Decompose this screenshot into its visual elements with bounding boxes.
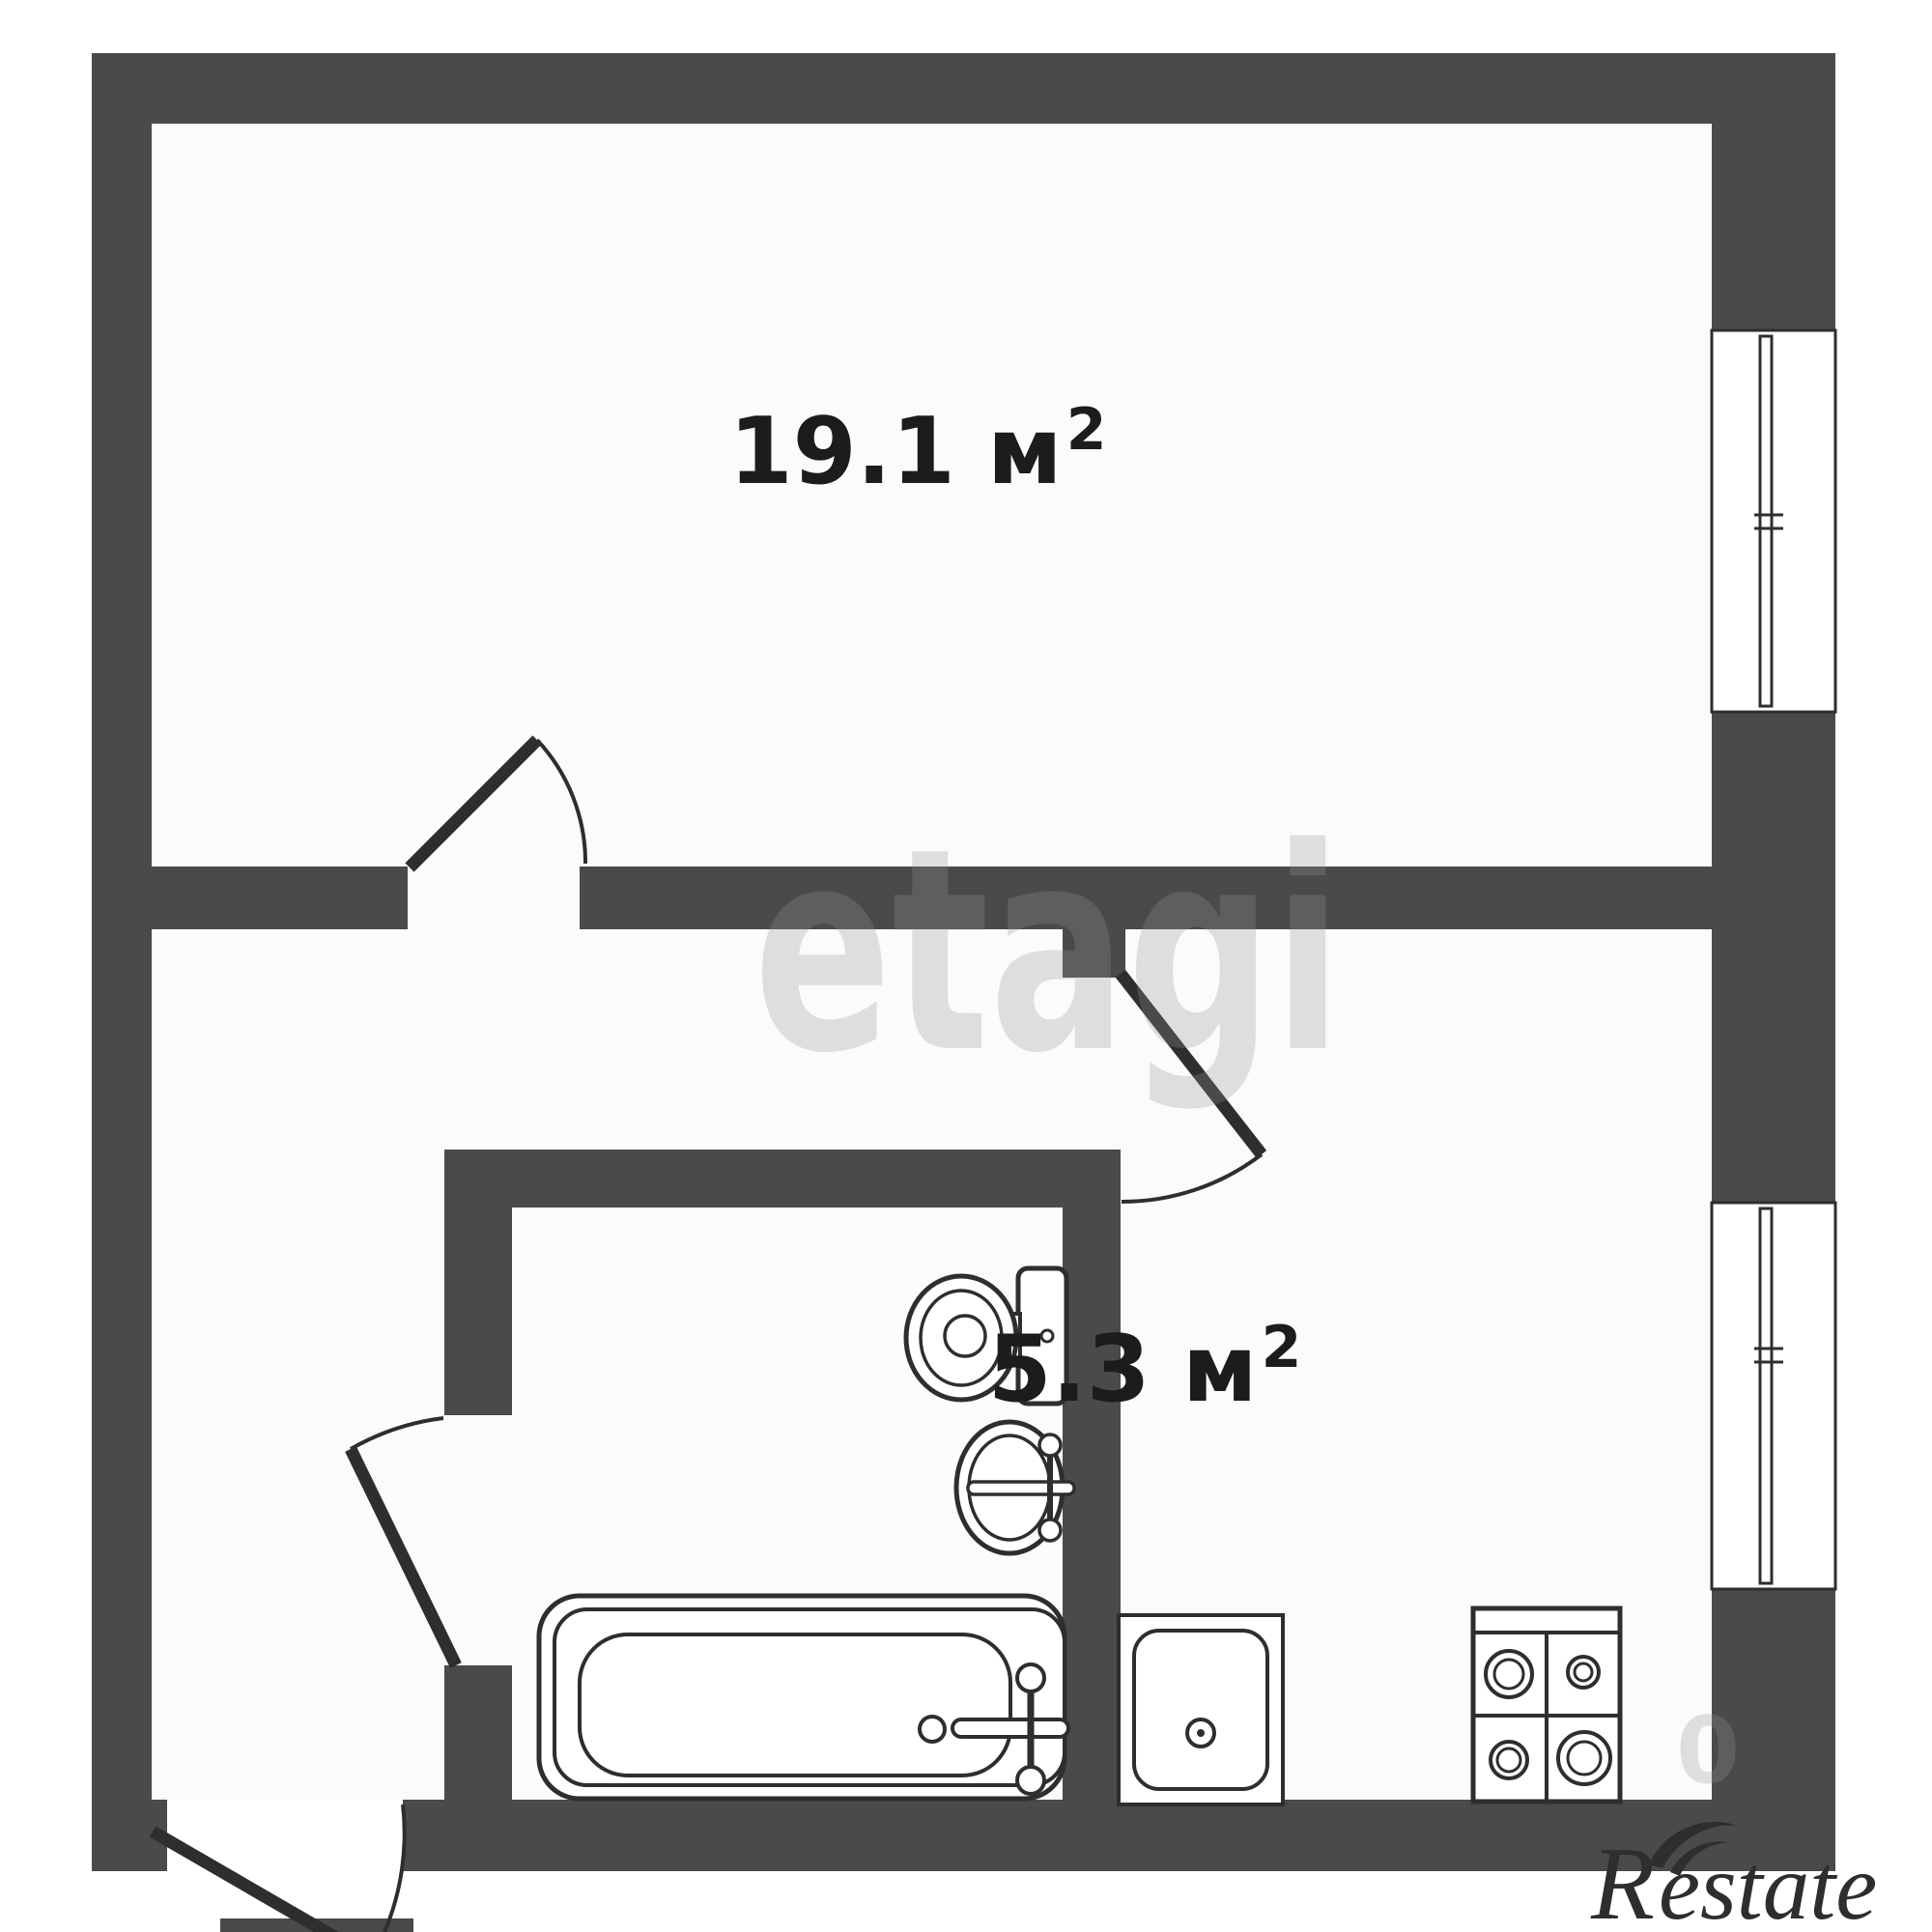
area-value: 5.3 м bbox=[988, 1317, 1258, 1423]
wall-bathroom-left-lower bbox=[444, 1665, 512, 1800]
wall-middle-left bbox=[152, 867, 408, 929]
wall-right-upper bbox=[1712, 124, 1835, 330]
area-superscript: 2 bbox=[1066, 396, 1107, 464]
wall-top bbox=[92, 53, 1835, 124]
stove-burner-inner bbox=[1497, 1748, 1520, 1772]
brand-initial: R bbox=[1590, 1827, 1655, 1932]
window-living-room bbox=[1712, 330, 1835, 712]
watermark-etagi: etagi bbox=[753, 789, 1343, 1115]
room-area-label-living: 19.1 м2 bbox=[729, 396, 1107, 505]
window-recess bbox=[1712, 1203, 1835, 1589]
window-recess bbox=[1712, 330, 1835, 712]
basin-faucet-bar bbox=[968, 1482, 1074, 1494]
room-area-label-kitchen: 5.3 м2 bbox=[988, 1314, 1302, 1423]
sink-drain-dot bbox=[1197, 1729, 1205, 1737]
toilet-bowl-center bbox=[945, 1316, 985, 1356]
window-mullion bbox=[1760, 336, 1772, 706]
basin-faucet-knob bbox=[1039, 1435, 1061, 1456]
window-kitchen bbox=[1712, 1203, 1835, 1589]
stove-burner-inner bbox=[1494, 1660, 1523, 1689]
stove-burner-inner bbox=[1568, 1742, 1601, 1775]
wall-bathroom-top bbox=[444, 1150, 1121, 1207]
bathtub-faucet-knob bbox=[1017, 1767, 1044, 1794]
floor-plan: 19.1 м2 5.3 м2 etagi 0 R estate bbox=[0, 0, 1932, 1932]
stove-burner-inner bbox=[1575, 1663, 1592, 1681]
area-superscript: 2 bbox=[1262, 1314, 1302, 1381]
watermark-digit: 0 bbox=[1676, 1698, 1740, 1804]
bathtub-faucet-bar bbox=[952, 1719, 1068, 1737]
wall-left bbox=[92, 53, 152, 1871]
area-value: 19.1 м bbox=[729, 399, 1063, 505]
brand-text: estate bbox=[1659, 1835, 1877, 1932]
wall-bathroom-left-upper bbox=[444, 1207, 512, 1415]
wash-basin bbox=[956, 1422, 1074, 1553]
stove bbox=[1473, 1608, 1620, 1802]
bathtub-drain bbox=[920, 1717, 945, 1742]
bathtub-faucet-knob bbox=[1017, 1664, 1044, 1691]
sink-basin bbox=[1134, 1631, 1267, 1789]
brand-logo: R estate bbox=[1590, 1822, 1877, 1932]
kitchen-sink bbox=[1119, 1615, 1283, 1804]
bathtub-basin bbox=[580, 1634, 1010, 1776]
wall-bathroom-right bbox=[1063, 1207, 1121, 1800]
bathtub bbox=[539, 1596, 1068, 1799]
basin-faucet-knob bbox=[1039, 1520, 1061, 1541]
window-mullion bbox=[1760, 1208, 1772, 1583]
wall-right-middle bbox=[1712, 712, 1835, 1203]
